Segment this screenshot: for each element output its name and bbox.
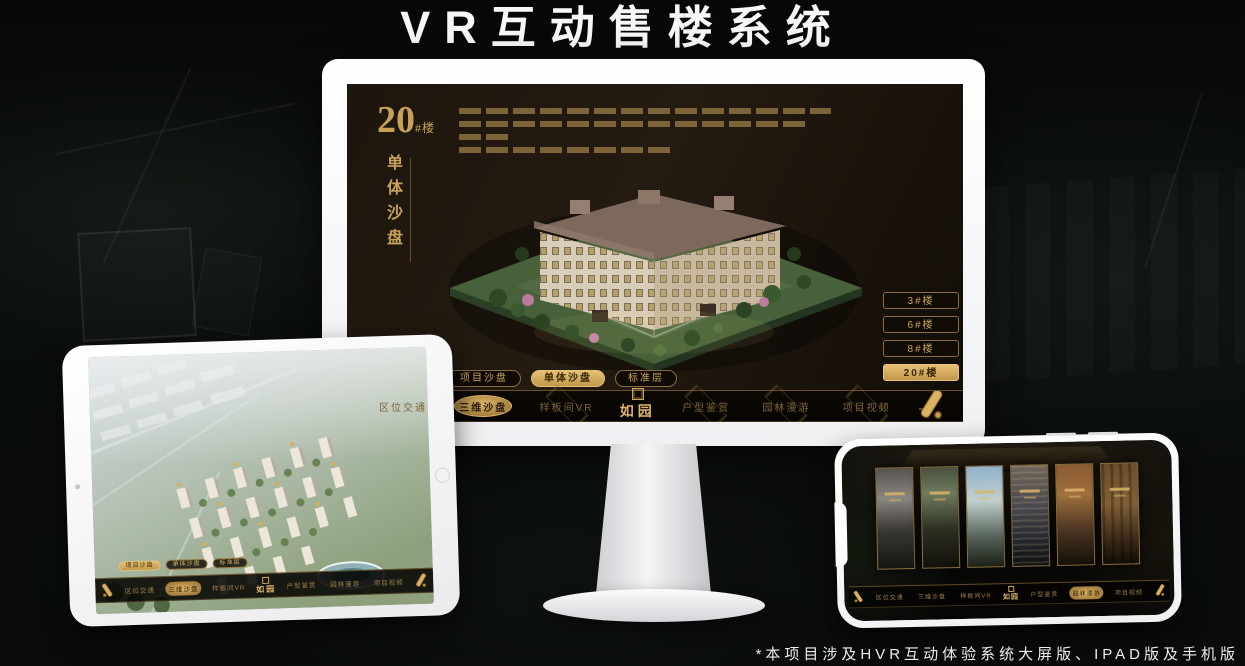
background-plaque	[77, 227, 197, 342]
phone-nav-project-video[interactable]: 项目视频	[1112, 585, 1146, 599]
tablet-nav-location[interactable]: 区位交通	[122, 582, 158, 597]
floor-selector: 3#楼 6#楼 8#楼 20#楼	[883, 292, 959, 381]
nav-item-project-video[interactable]: 项目视频	[837, 396, 897, 417]
monitor-stand	[596, 444, 711, 594]
intro-text-line	[459, 121, 807, 127]
background-plaque	[191, 248, 262, 337]
tablet-nav-floorplans[interactable]: 户型鉴赏	[283, 577, 319, 592]
tablet-nav-showroom-vr[interactable]: 样板间VR	[209, 579, 249, 594]
gold-divider	[410, 158, 411, 262]
tablet-nav-3d-sandbox[interactable]: 三维沙盘	[165, 580, 201, 595]
page-title: VR互动售楼系统	[0, 0, 1245, 56]
logo-text: 如园	[620, 401, 656, 421]
floor-button-8[interactable]: 8#楼	[883, 340, 959, 357]
phone-nav-showroom-vr[interactable]: 样板间VR	[957, 588, 995, 602]
tablet-screen: 项目沙盘 单体沙盘 标准层 区位交通 三维沙盘 样板间VR 如园 户型鉴赏 园林…	[88, 347, 434, 614]
tab-single-sandbox[interactable]: 单体沙盘	[531, 370, 605, 387]
floor-number: 20	[377, 99, 415, 141]
nav-item-3d-sandbox[interactable]: 三维沙盘	[453, 396, 513, 417]
scroll-icon[interactable]	[100, 582, 114, 598]
tab-standard-floor[interactable]: 标准层	[615, 370, 677, 387]
intro-text-line	[459, 108, 831, 114]
phone-nav-floorplans[interactable]: 户型鉴赏	[1027, 586, 1061, 600]
tablet-tab-standard-floor[interactable]: 标准层	[212, 557, 247, 568]
gallery-panel-interior[interactable]	[1100, 462, 1140, 565]
phone-screen: 区位交通 三维沙盘 样板间VR 如园 户型鉴赏 园林漫游 项目视频	[841, 440, 1175, 622]
camera-icon	[75, 484, 80, 489]
tablet-tab-single-sandbox[interactable]: 单体沙盘	[165, 559, 207, 570]
floor-title: 20#楼	[377, 98, 435, 142]
gallery-panel-building-day[interactable]	[965, 465, 1005, 568]
nav-item-showroom-vr[interactable]: 样板间VR	[534, 396, 600, 417]
poster-stage: VR互动售楼系统 20#楼 单体沙盘	[0, 0, 1245, 666]
gallery-panel-ink[interactable]	[875, 467, 915, 570]
floor-suffix: #楼	[415, 121, 435, 135]
scroll-icon[interactable]	[917, 391, 947, 421]
volume-button[interactable]	[1046, 433, 1076, 437]
phone-navbar: 区位交通 三维沙盘 样板间VR 如园 户型鉴赏 园林漫游 项目视频	[849, 580, 1169, 609]
phone-notch	[834, 502, 847, 566]
nav-item-garden-tour[interactable]: 园林漫游	[756, 396, 816, 417]
phone-nav-garden-tour[interactable]: 园林漫游	[1069, 586, 1103, 600]
seal-icon	[632, 388, 644, 400]
floor-button-6[interactable]: 6#楼	[883, 316, 959, 333]
view-tabs: 项目沙盘 单体沙盘 标准层	[447, 370, 677, 387]
floor-button-3[interactable]: 3#楼	[883, 292, 959, 309]
building-model-3d[interactable]	[442, 132, 872, 377]
logo-text: 如园	[1003, 592, 1019, 602]
tablet-tab-project-sandbox[interactable]: 项目沙盘	[118, 560, 160, 571]
gallery-panels	[875, 462, 1140, 569]
home-button[interactable]	[435, 467, 450, 482]
tablet-nav-project-video[interactable]: 项目视频	[370, 574, 406, 589]
gallery-panel-autumn[interactable]	[1055, 463, 1095, 566]
floor-button-20[interactable]: 20#楼	[883, 364, 959, 381]
phone-brand-logo[interactable]: 如园	[1003, 586, 1019, 602]
scroll-icon[interactable]	[1154, 584, 1166, 598]
tablet-nav-garden-tour[interactable]: 园林漫游	[327, 575, 363, 590]
tablet-device: 项目沙盘 单体沙盘 标准层 区位交通 三维沙盘 样板间VR 如园 户型鉴赏 园林…	[62, 334, 461, 627]
gallery-panel-courtyard[interactable]	[920, 466, 960, 569]
scroll-icon[interactable]	[852, 590, 864, 604]
phone-nav-3d-sandbox[interactable]: 三维沙盘	[915, 589, 949, 603]
background-buildings	[983, 169, 1245, 382]
brand-logo[interactable]: 如园	[620, 388, 656, 421]
tablet-brand-logo[interactable]: 如园	[256, 576, 277, 595]
logo-text: 如园	[256, 583, 276, 595]
scroll-icon[interactable]	[414, 572, 428, 588]
gallery-panel-building-dusk[interactable]	[1010, 464, 1050, 567]
footnote: *本项目涉及HVR互动体验系统大屏版、IPAD版及手机版	[756, 643, 1239, 664]
phone-device: 区位交通 三维沙盘 样板间VR 如园 户型鉴赏 园林漫游 项目视频	[834, 432, 1182, 628]
power-button[interactable]	[1088, 432, 1118, 436]
tab-project-sandbox[interactable]: 项目沙盘	[447, 370, 521, 387]
monitor-base	[543, 589, 765, 622]
panel-subtitle: 单体沙盘	[380, 154, 404, 254]
background-road-line	[54, 103, 294, 156]
phone-nav-location[interactable]: 区位交通	[873, 590, 907, 604]
nav-item-floorplans[interactable]: 户型鉴赏	[676, 396, 736, 417]
